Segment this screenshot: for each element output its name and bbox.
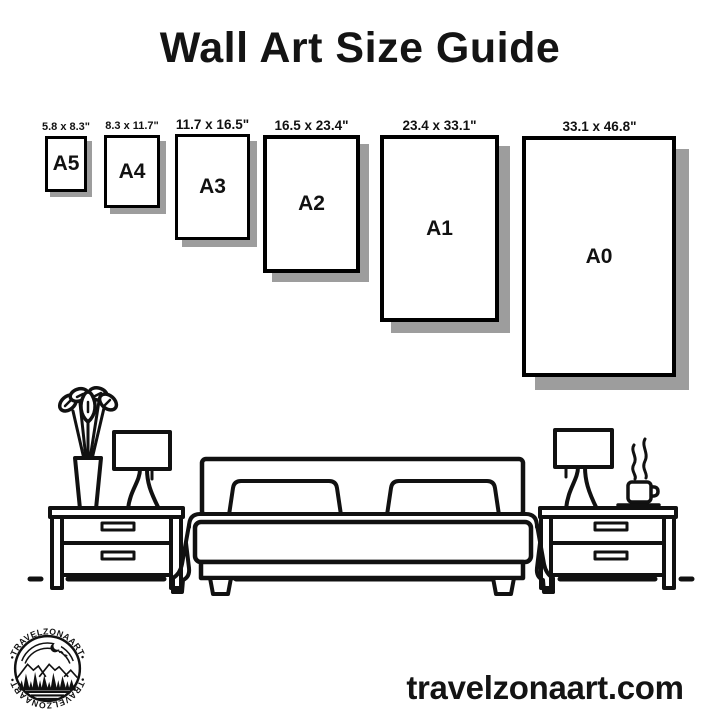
nightstand-left-icon [50,508,183,588]
nightstand-right-icon [540,508,676,588]
table-lamp-left-icon [114,432,170,509]
website-url: travelzonaart.com [375,669,715,707]
plant-vase-icon [57,386,120,509]
size-label-a0: A0 [586,245,613,269]
size-frame-a0: A0 [522,136,676,377]
size-label-a2: A2 [298,192,325,216]
size-label-a1: A1 [426,217,453,241]
size-frame-a3: A3 [175,134,250,240]
coffee-cup-icon [618,439,659,505]
page-title: Wall Art Size Guide [0,24,720,73]
size-label-a3: A3 [199,175,226,199]
size-frame-a2: A2 [263,135,360,273]
size-frame-a4: A4 [104,135,160,208]
double-bed-icon [173,459,553,594]
size-frame-a1: A1 [380,135,499,322]
size-frame-a5: A5 [45,136,87,192]
bedroom-illustration [0,375,720,605]
table-lamp-right-icon [555,430,612,509]
size-label-a4: A4 [119,160,146,184]
size-label-a5: A5 [53,152,80,176]
wall-art-size-guide-infographic: Wall Art Size Guide 5.8 x 8.3" 8.3 x 11.… [0,0,720,720]
size-dimensions-a0: 33.1 x 46.8" [527,119,672,134]
size-dimensions-a2: 16.5 x 23.4" [239,118,384,133]
size-dimensions-a1: 23.4 x 33.1" [367,118,512,133]
brand-logo: •TRAVELZONAART• •TRAVELZONAART• [6,627,89,710]
